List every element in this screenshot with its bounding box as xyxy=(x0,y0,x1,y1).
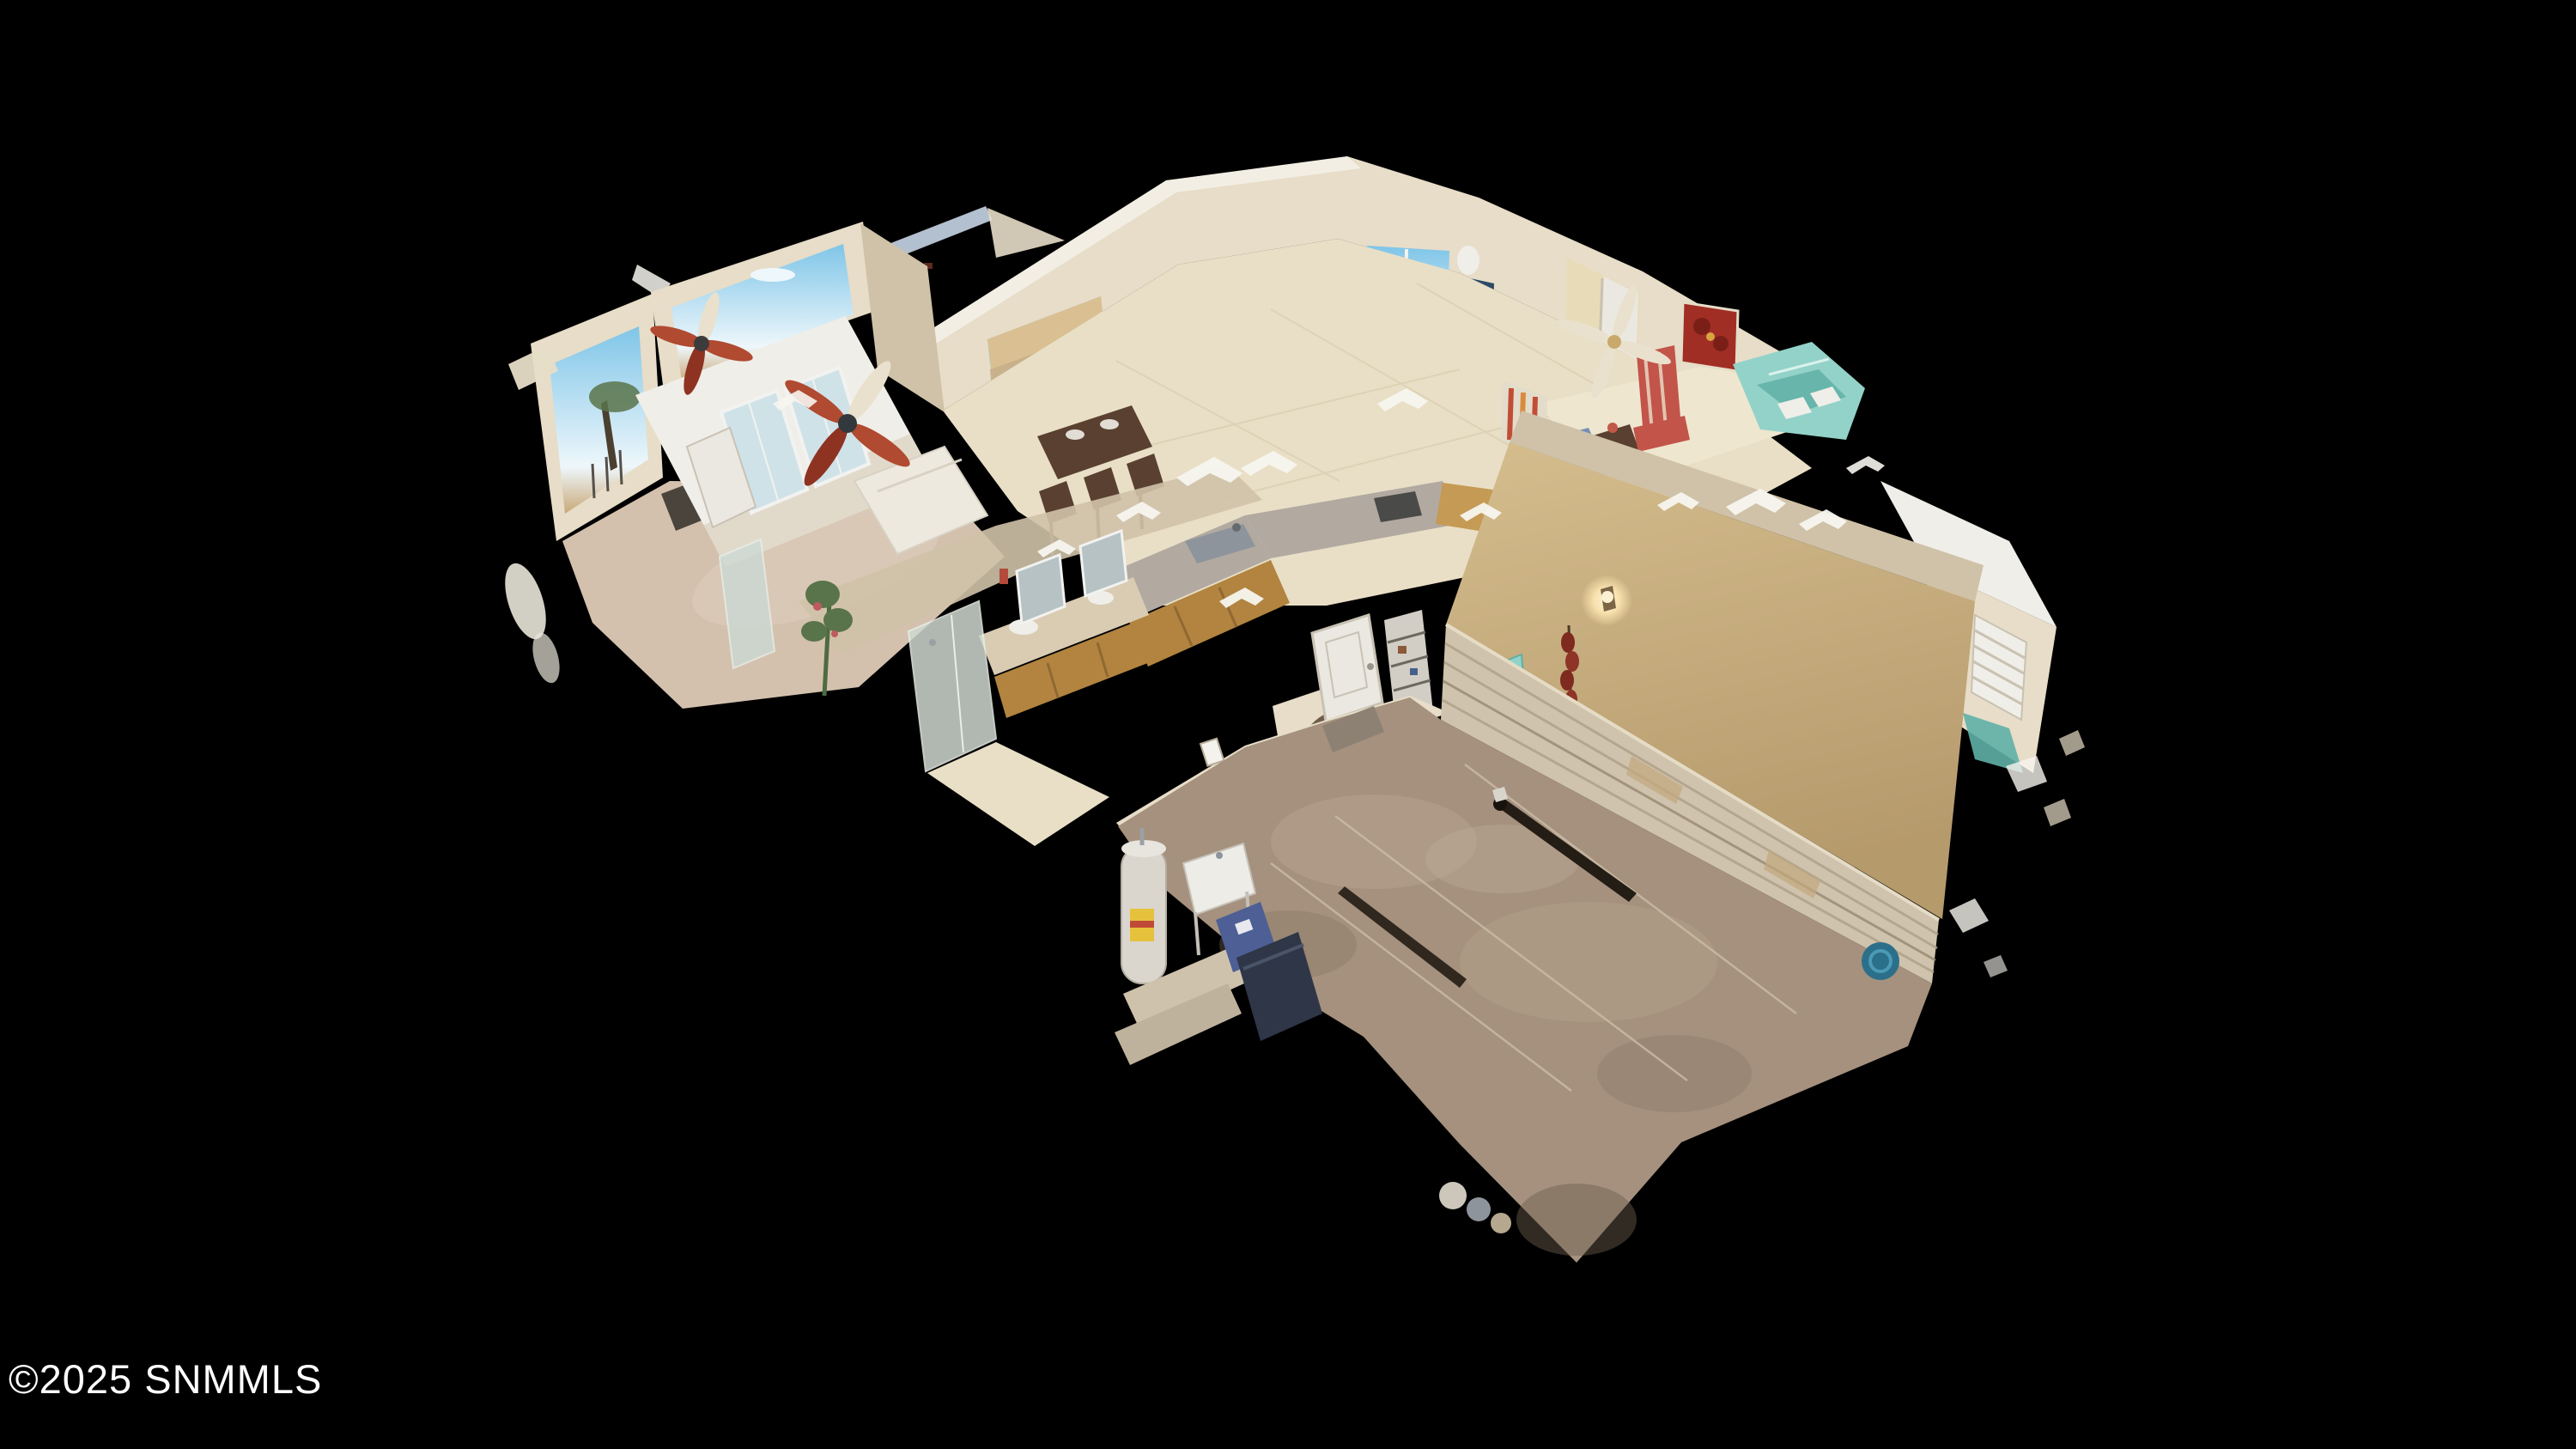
garage-entry-door xyxy=(1312,615,1382,721)
dollhouse-3d-view[interactable] xyxy=(0,0,2576,1449)
dollhouse-screenshot: ©2025 SNMMLS xyxy=(0,0,2576,1449)
water-heater xyxy=(1121,828,1166,983)
red-flower-painting xyxy=(1681,302,1738,371)
watermark: ©2025 SNMMLS xyxy=(9,1355,322,1403)
